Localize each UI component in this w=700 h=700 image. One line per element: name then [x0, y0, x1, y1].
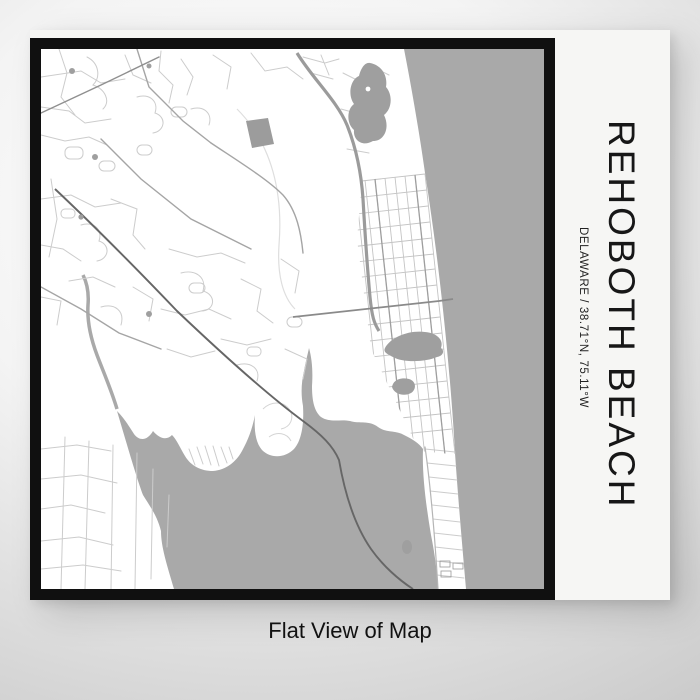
print-title: REHOBOTH BEACH — [600, 120, 642, 560]
product-photo: REHOBOTH BEACH DELAWARE / 38.71°N, 75.11… — [0, 0, 700, 700]
map-frame — [30, 38, 555, 600]
map-graphic — [41, 49, 544, 589]
print-subtitle: DELAWARE / 38.71°N, 75.11°W — [577, 227, 589, 487]
map-print: REHOBOTH BEACH DELAWARE / 38.71°N, 75.11… — [30, 30, 670, 600]
caption-text: Flat View of Map — [0, 618, 700, 644]
